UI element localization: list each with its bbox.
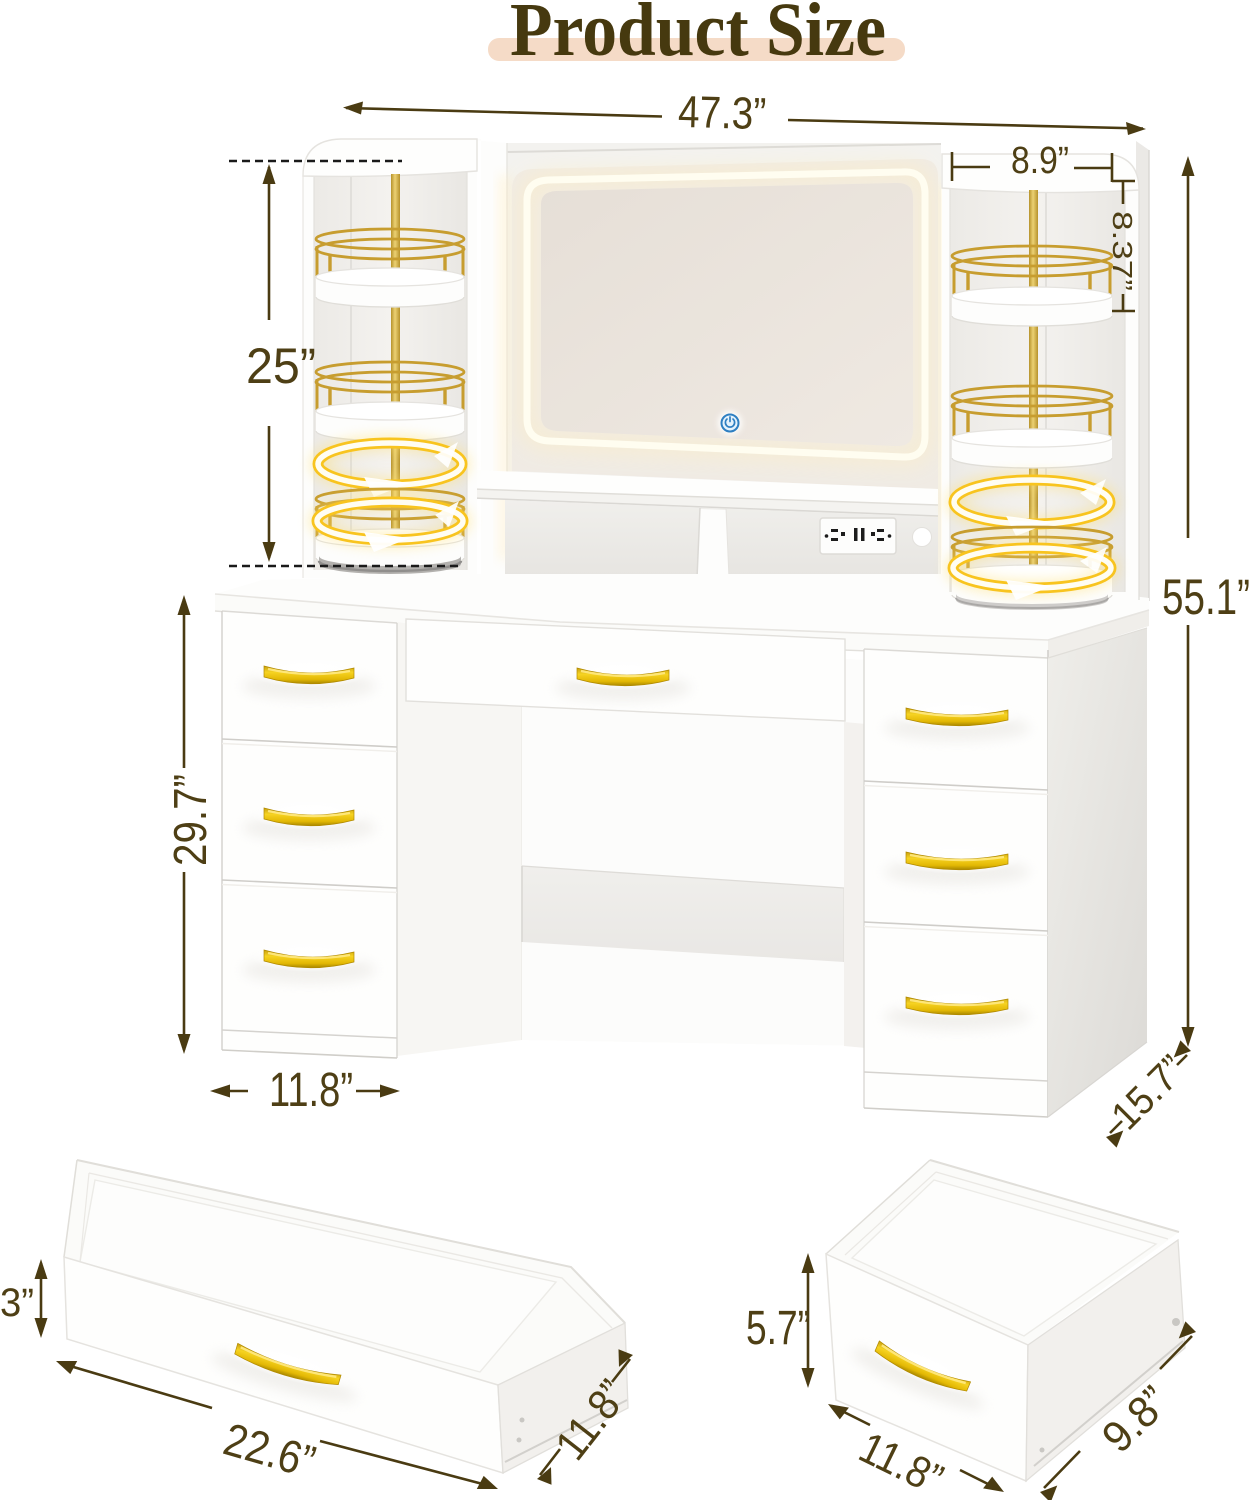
svg-text:47.3”: 47.3”: [677, 86, 766, 139]
svg-text:8.37”: 8.37”: [1107, 211, 1138, 291]
svg-text:8.9”: 8.9”: [1011, 140, 1069, 182]
svg-text:5.7”: 5.7”: [746, 1302, 810, 1355]
svg-text:29.7”: 29.7”: [164, 774, 216, 866]
svg-text:25”: 25”: [246, 338, 316, 394]
svg-text:Product Size: Product Size: [510, 0, 886, 72]
svg-text:11.8”: 11.8”: [269, 1064, 353, 1117]
svg-text:55.1”: 55.1”: [1162, 569, 1250, 625]
svg-text:3”: 3”: [0, 1281, 34, 1325]
